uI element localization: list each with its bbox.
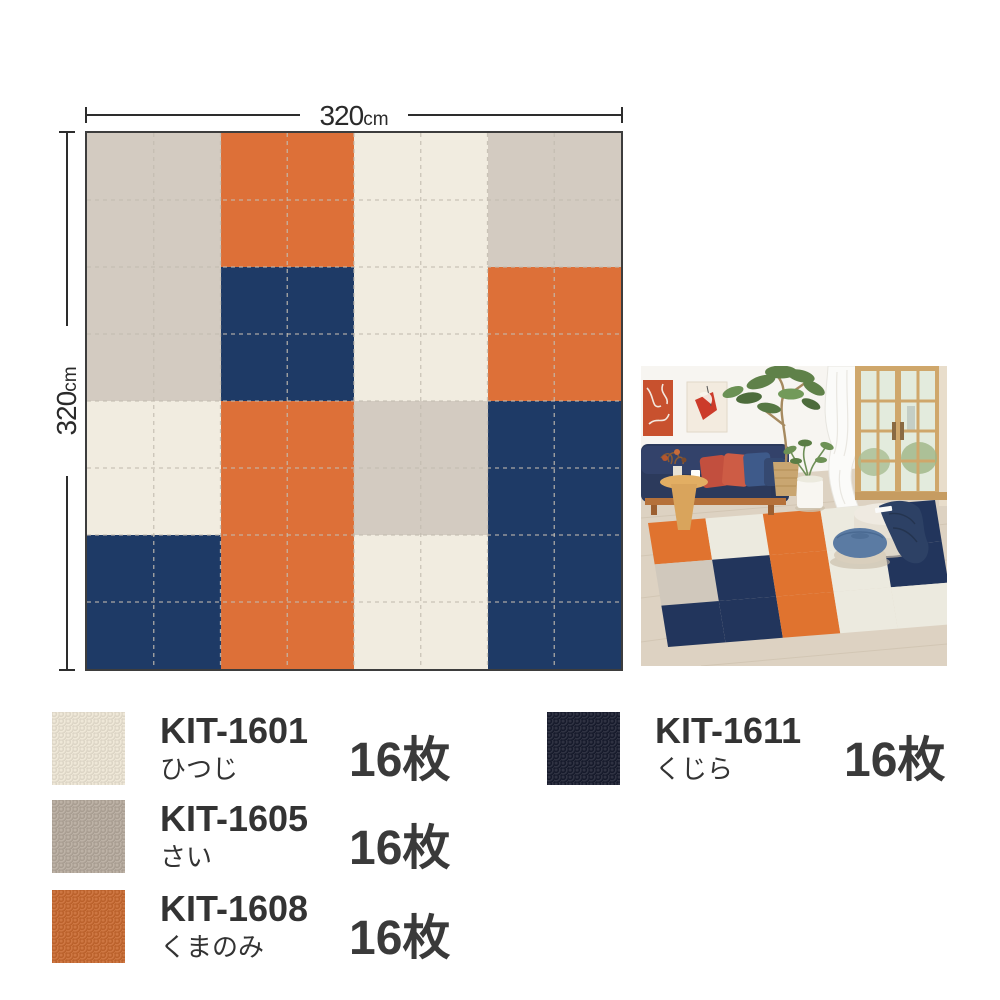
sofa-wood-base [645, 498, 786, 505]
sofa-leg [651, 505, 657, 515]
color-swatch-kit-1608 [52, 890, 125, 963]
tile-block-cream [354, 133, 488, 267]
tile-block-navy [87, 535, 221, 669]
tile-block-gray [354, 401, 488, 535]
width-unit: cm [363, 109, 388, 130]
height-dimension-label: 320cm [51, 366, 83, 435]
tile-count: 16枚 [349, 735, 450, 787]
color-swatch-kit-1605 [52, 800, 125, 873]
door-handle-right [900, 422, 904, 440]
pouf-small [830, 528, 890, 569]
dimension-line-right [408, 114, 621, 116]
dimension-tick-right [621, 107, 623, 123]
product-name: ひつじ [160, 755, 335, 783]
product-code: KIT-1601 [160, 712, 335, 750]
tile-block-cream [354, 535, 488, 669]
tile-block-navy [488, 535, 622, 669]
tile-block-gray [488, 133, 622, 267]
legend-labels: KIT-1608 くまのみ [160, 890, 335, 961]
door-handle-left [892, 422, 896, 440]
tile-grid-blocks [87, 133, 621, 669]
tile-block-cream [87, 401, 221, 535]
product-name: さい [160, 843, 335, 871]
wall-art-left [643, 380, 673, 436]
dimension-line-top [66, 133, 68, 326]
legend-item-kit-1611: KIT-1611 くじら 16枚 [547, 712, 945, 785]
legend-labels: KIT-1611 くじら [655, 712, 830, 783]
tile-block-orange [221, 535, 355, 669]
color-swatch-kit-1611 [547, 712, 620, 785]
tile-block-orange [221, 401, 355, 535]
product-name: くまのみ [160, 933, 335, 961]
tile-block-gray [87, 133, 221, 267]
tile-block-orange [488, 267, 622, 401]
plant-pot-small [797, 479, 823, 508]
product-name: くじら [655, 755, 830, 783]
tile-layout-diagram [85, 131, 623, 671]
dimension-line-left [87, 114, 300, 116]
tile-block-navy [221, 267, 355, 401]
legend-item-kit-1608: KIT-1608 くまのみ 16枚 [52, 890, 450, 963]
dimension-tick-bottom [59, 669, 75, 671]
color-swatch-kit-1601 [52, 712, 125, 785]
height-dimension: 320cm [59, 131, 75, 671]
height-value: 320 [51, 392, 82, 436]
tile-count: 16枚 [349, 913, 450, 965]
product-code: KIT-1608 [160, 890, 335, 928]
room-photo [641, 366, 947, 666]
sofa-leg [768, 505, 774, 515]
width-dimension: 320cm [85, 107, 623, 123]
tile-block-orange [221, 133, 355, 267]
legend-labels: KIT-1601 ひつじ [160, 712, 335, 783]
tile-block-cream [354, 267, 488, 401]
product-code: KIT-1611 [655, 712, 830, 750]
french-doors [855, 366, 947, 506]
tile-block-gray [87, 267, 221, 401]
tile-count: 16枚 [349, 823, 450, 875]
product-code: KIT-1605 [160, 800, 335, 838]
legend-labels: KIT-1605 さい [160, 800, 335, 871]
width-dimension-label: 320cm [319, 100, 388, 132]
height-unit: cm [60, 366, 81, 391]
wall-art-right [687, 382, 727, 432]
legend-item-kit-1605: KIT-1605 さい 16枚 [52, 800, 450, 873]
width-value: 320 [319, 100, 363, 131]
tile-block-navy [488, 401, 622, 535]
product-layout-page: 320cm 320cm [0, 0, 1000, 1000]
legend-item-kit-1601: KIT-1601 ひつじ 16枚 [52, 712, 450, 785]
plant-pot-large [773, 462, 799, 496]
door-threshold [855, 492, 947, 500]
tile-count: 16枚 [844, 735, 945, 787]
dimension-line-bottom [66, 476, 68, 669]
